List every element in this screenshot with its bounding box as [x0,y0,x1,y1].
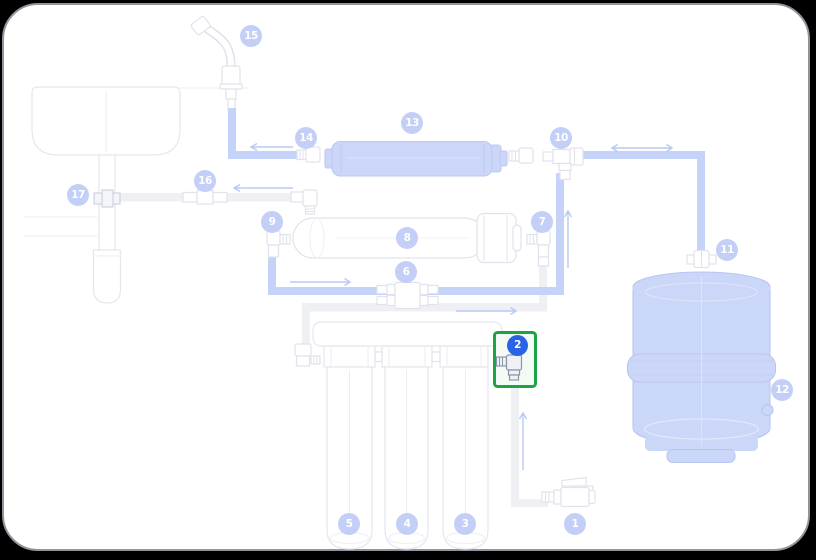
inline-filter [325,142,507,177]
part-badge-12[interactable]: 12 [771,379,793,401]
part-badge-17[interactable]: 17 [67,184,89,206]
filter-housing-caps [324,346,488,367]
part-badge-5[interactable]: 5 [338,513,360,535]
part-badge-9[interactable]: 9 [261,211,283,233]
part-badge-4[interactable]: 4 [396,513,418,535]
tank-valve-fitting [687,251,716,268]
faucet [190,16,242,110]
part-badge-3[interactable]: 3 [454,513,476,535]
auto-shutoff-valve [377,283,438,309]
membrane-outlet-elbow [527,231,550,266]
part-badge-7[interactable]: 7 [531,211,553,233]
part-badge-10[interactable]: 10 [550,127,572,149]
filter-manifold [313,322,502,346]
part-badge-8[interactable]: 8 [396,227,418,249]
drain-pipe [94,155,121,303]
feed-adapter-valve [542,478,595,507]
manifold-inlet-elbow [295,344,320,366]
sink [24,87,249,236]
diagram-canvas: 1 2 3 4 5 6 7 8 9 10 11 12 13 14 15 16 1… [0,0,816,560]
storage-tank [628,272,776,463]
drain-elbow-fitting [291,190,317,214]
part-badge-11[interactable]: 11 [716,239,738,261]
faucet-line-fitting [297,147,320,162]
part-badge-13[interactable]: 13 [401,112,423,134]
membrane-inlet-elbow [267,231,290,257]
tee-fitting [543,148,583,180]
part-badge-16[interactable]: 16 [194,170,216,192]
drain-saddle-valve [94,190,120,207]
part-badge-14[interactable]: 14 [295,127,317,149]
part-badge-6[interactable]: 6 [395,261,417,283]
drain-line-fitting [183,191,227,205]
part-badge-1[interactable]: 1 [564,513,586,535]
part-badge-15[interactable]: 15 [240,25,262,47]
part-badge-2-selected[interactable]: 2 [507,335,528,356]
filter-outlet-fitting [509,148,533,163]
